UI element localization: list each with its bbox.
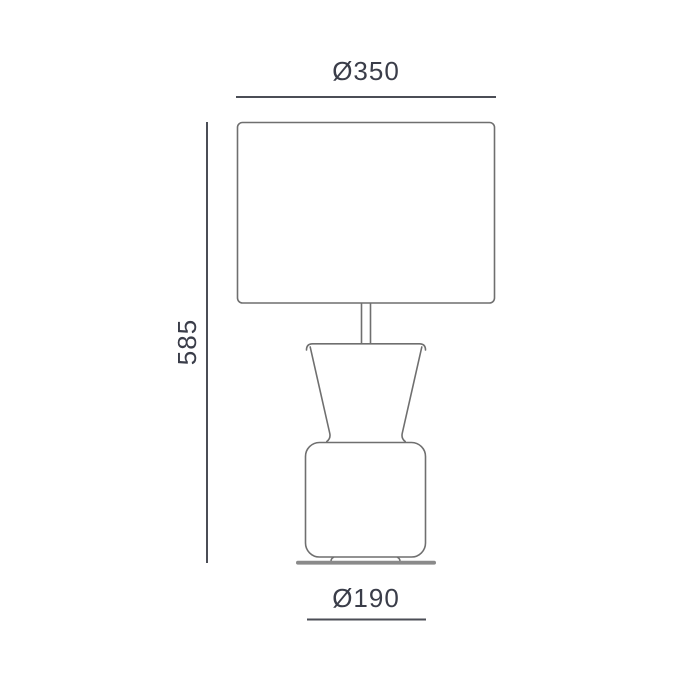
cone-left-side <box>310 347 330 442</box>
base-diameter-label: Ø190 <box>296 584 436 612</box>
body-outline <box>306 443 426 558</box>
lamp-outline-group <box>238 123 495 565</box>
height-label: 585 <box>173 302 201 382</box>
lamp-dimension-drawing: Ø350 585 Ø190 <box>0 0 700 700</box>
left-foot <box>331 557 333 561</box>
base-plate <box>296 561 436 565</box>
dimension-lines-group <box>207 97 496 620</box>
cone-right-side <box>402 347 422 442</box>
cone-top-edge <box>307 344 426 350</box>
shade-diameter-label: Ø350 <box>296 57 436 85</box>
lampshade-outline <box>238 123 495 304</box>
right-foot <box>398 557 400 561</box>
